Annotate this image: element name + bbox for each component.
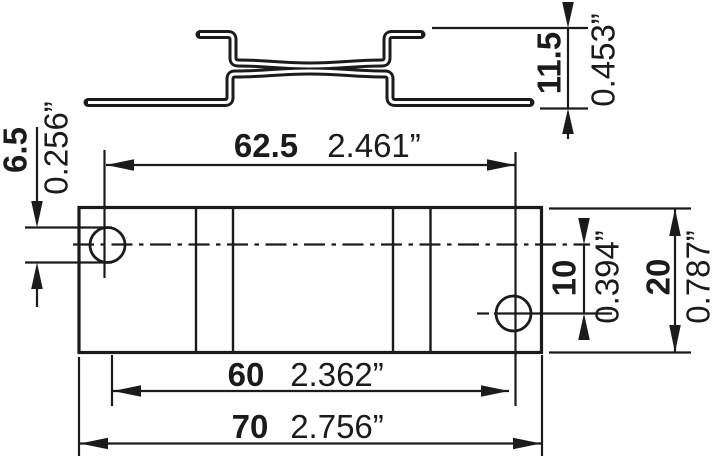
arrowhead-down (31, 201, 43, 228)
arrowhead-left (80, 438, 108, 450)
arrowhead-down (562, 2, 574, 28)
dim-hole-pitch-inner: 60 2.362” (112, 355, 509, 406)
dimension-drawing: 11.5 0.453” 62.5 2.461” 6.5 0.256” (0, 0, 720, 457)
profile-lower-sheet-outline (88, 71, 530, 103)
dim-label-inch: 0.787” (680, 230, 717, 324)
profile-section-view (88, 35, 530, 103)
dim-label-mm: 60 (228, 356, 265, 393)
dim-label-inch: 2.756” (290, 408, 384, 445)
arrowhead-right (513, 438, 541, 450)
dim-label-mm: 6.5 (0, 127, 34, 173)
dim-label-mm: 10 (546, 260, 583, 297)
plate-front-view (73, 208, 612, 353)
profile-upper-sheet-core (200, 35, 421, 67)
dim-label-mm: 11.5 (531, 32, 568, 94)
dim-hole-row-offset: 10 0.394” (546, 218, 626, 340)
technical-drawing-canvas: 11.5 0.453” 62.5 2.461” 6.5 0.256” (0, 0, 720, 457)
plate-outline (79, 208, 542, 353)
dim-label-inch: 0.453” (585, 13, 622, 107)
arrowhead-right (487, 159, 515, 171)
arrowhead-left (106, 159, 134, 171)
arrowhead-right (481, 385, 509, 397)
dim-label-mm: 70 (232, 408, 269, 445)
dim-profile-height: 11.5 0.453” (432, 2, 622, 139)
dim-label-inch: 0.394” (589, 230, 626, 324)
dim-label-inch: 2.362” (290, 356, 384, 393)
profile-lower-sheet-core (88, 71, 530, 103)
dim-label-inch: 0.256” (38, 101, 75, 195)
arrowhead-left (113, 385, 141, 397)
arrowhead-down (669, 325, 681, 353)
dim-hole-diameter: 6.5 0.256” (0, 101, 112, 307)
dim-label-inch: 2.461” (327, 127, 421, 164)
dim-label-mm: 62.5 (234, 127, 298, 164)
dim-label-mm: 20 (640, 259, 677, 296)
